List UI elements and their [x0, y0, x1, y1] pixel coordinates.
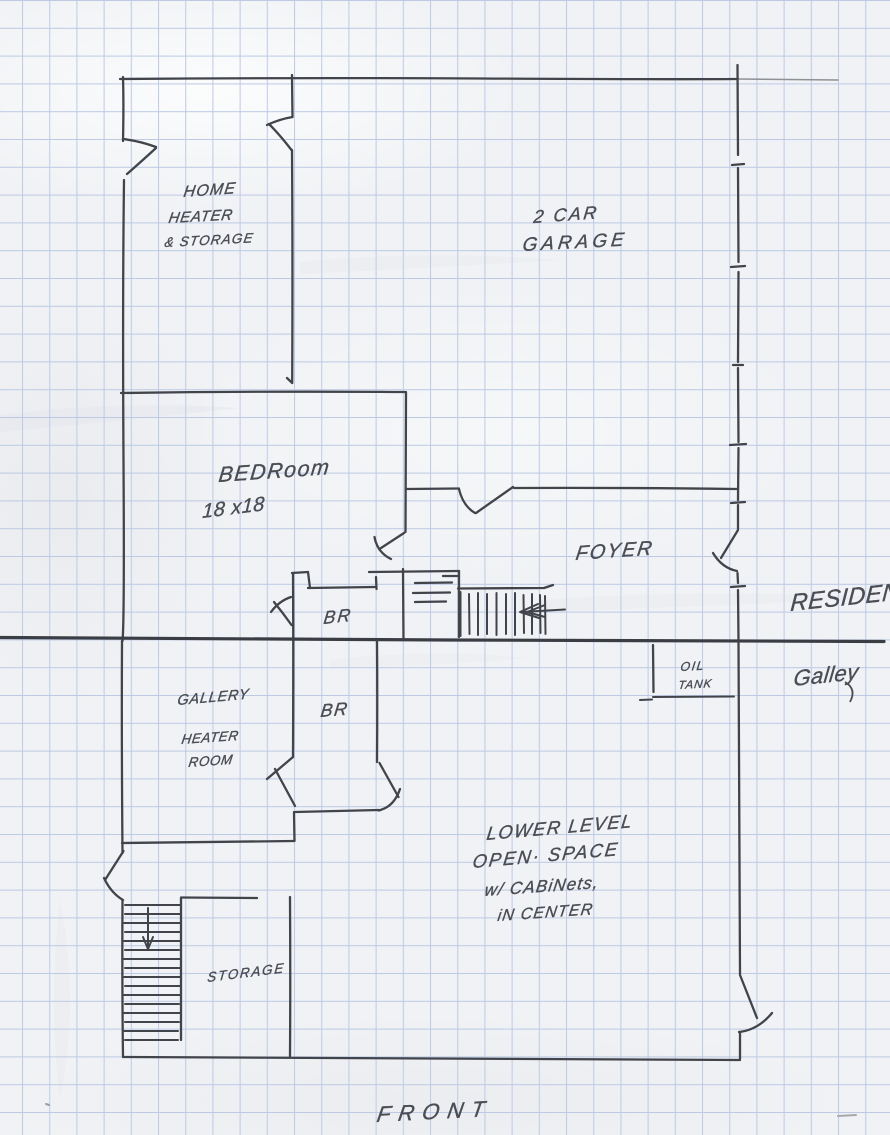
svg-text:OIL: OIL	[680, 659, 706, 674]
svg-text:TANK: TANK	[678, 678, 713, 692]
svg-text:BR: BR	[320, 699, 350, 722]
svg-text:BR: BR	[323, 605, 354, 628]
svg-text:HEATER: HEATER	[167, 207, 234, 227]
